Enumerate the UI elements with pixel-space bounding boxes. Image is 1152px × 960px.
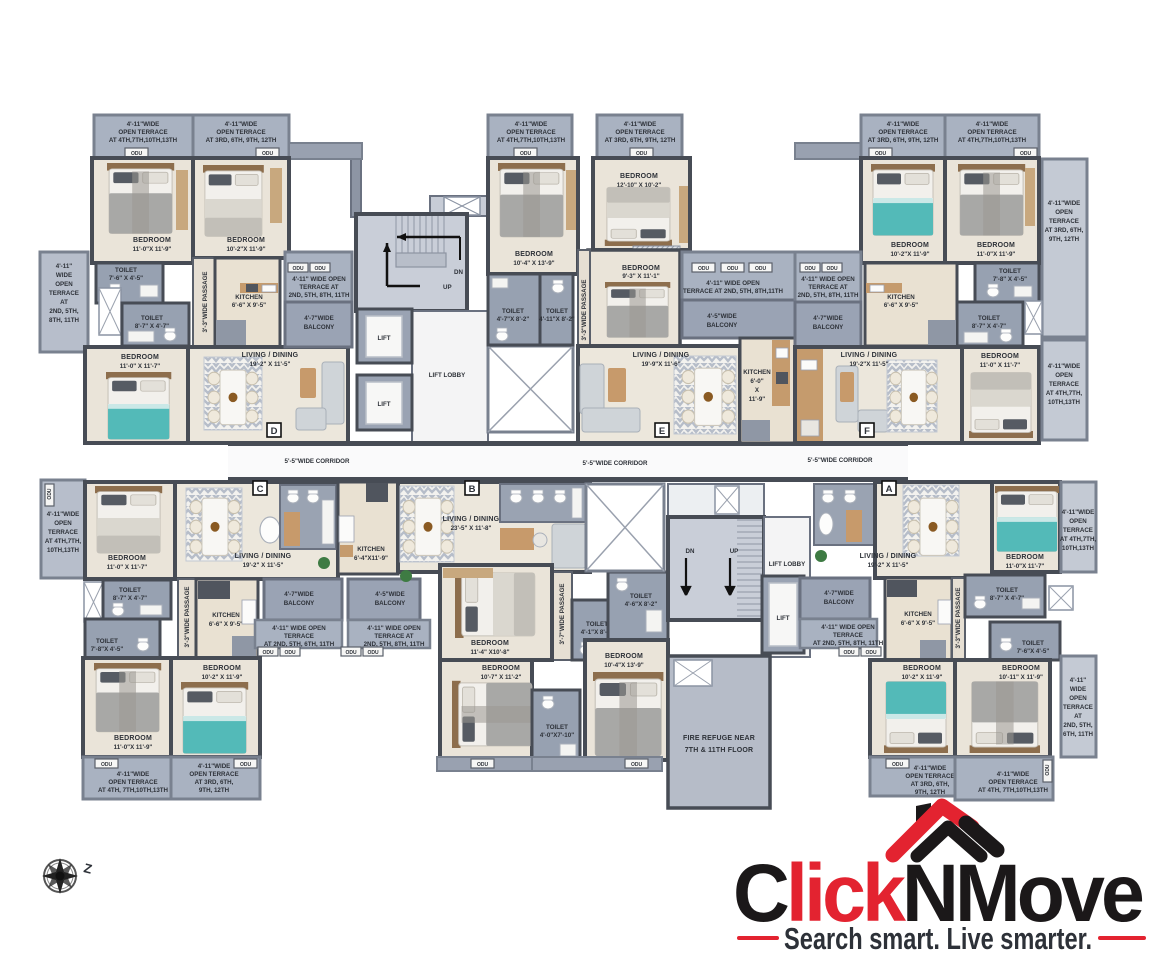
svg-text:5'-5"WIDE CORRIDOR: 5'-5"WIDE CORRIDOR [583,460,648,467]
svg-text:11'-0" X 11'-7": 11'-0" X 11'-7" [120,363,161,370]
svg-text:11'-0"X 11'-9": 11'-0"X 11'-9" [114,744,153,751]
svg-text:2ND, 5TH, 8TH, 11TH: 2ND, 5TH, 8TH, 11TH [798,292,859,299]
svg-text:6'-6" X 9'-5": 6'-6" X 9'-5" [232,302,266,309]
svg-text:6'-6" X 9'-5": 6'-6" X 9'-5" [884,302,918,309]
svg-text:DN: DN [686,548,695,555]
svg-text:19'-2" X 11'-5": 19'-2" X 11'-5" [250,361,291,368]
svg-text:FIRE REFUGE NEAR: FIRE REFUGE NEAR [683,735,755,742]
svg-text:OPEN TERRACE: OPEN TERRACE [905,773,954,780]
svg-text:AT 4TH,7TH,: AT 4TH,7TH, [1046,390,1083,397]
svg-text:LIVING / DINING: LIVING / DINING [841,352,898,359]
svg-text:AT 4TH,7TH,10TH,13TH: AT 4TH,7TH,10TH,13TH [109,137,178,144]
svg-text:10'-2"X 11'-9": 10'-2"X 11'-9" [890,251,929,258]
svg-text:2ND, 5TH,: 2ND, 5TH, [49,308,79,315]
svg-text:2ND, 5TH,: 2ND, 5TH, [1063,722,1093,729]
svg-text:TOILET: TOILET [1022,640,1044,647]
svg-text:4'-11"WIDE: 4'-11"WIDE [1048,363,1081,370]
svg-text:A: A [886,484,893,495]
svg-text:4'-11"WIDE: 4'-11"WIDE [914,765,947,772]
svg-text:AT 4TH, 7TH,10TH,13TH: AT 4TH, 7TH,10TH,13TH [978,787,1049,794]
svg-text:LIVING / DINING: LIVING / DINING [860,553,917,560]
svg-text:BEDROOM: BEDROOM [1006,554,1044,561]
svg-text:9'-3" X 11'-1": 9'-3" X 11'-1" [622,273,659,280]
svg-text:4'-11"WIDE: 4'-11"WIDE [47,511,80,518]
svg-text:4'-7"WIDE: 4'-7"WIDE [813,315,843,322]
svg-text:AT 3RD, 6TH, 9TH, 12TH: AT 3RD, 6TH, 9TH, 12TH [605,137,676,144]
svg-text:7TH & 11TH FLOOR: 7TH & 11TH FLOOR [685,747,754,754]
svg-text:KITCHEN: KITCHEN [887,294,915,301]
svg-text:AT 4TH, 7TH,10TH,13TH: AT 4TH, 7TH,10TH,13TH [98,787,169,794]
svg-text:ODU: ODU [727,266,739,272]
svg-text:BEDROOM: BEDROOM [891,242,929,249]
svg-text:OPEN: OPEN [1055,372,1073,379]
svg-text:BEDROOM: BEDROOM [482,665,520,672]
svg-text:11'-0" X 11'-7": 11'-0" X 11'-7" [980,362,1021,369]
svg-text:23'-5" X 11'-8": 23'-5" X 11'-8" [451,525,492,532]
svg-text:TOILET: TOILET [978,315,1000,322]
svg-text:11'-0"X 11'-9": 11'-0"X 11'-9" [133,246,172,253]
svg-text:BEDROOM: BEDROOM [1002,665,1040,672]
svg-text:OPEN TERRACE: OPEN TERRACE [967,129,1016,136]
svg-text:ODU: ODU [284,650,296,656]
svg-text:BALCONY: BALCONY [707,322,738,329]
svg-text:4'-11"WIDE: 4'-11"WIDE [624,121,657,128]
svg-text:BEDROOM: BEDROOM [108,555,146,562]
svg-text:TOILET: TOILET [546,308,568,315]
svg-text:BEDROOM: BEDROOM [203,665,241,672]
svg-text:BALCONY: BALCONY [824,599,855,606]
svg-text:11'-0"X 11'-7": 11'-0"X 11'-7" [1006,563,1045,570]
svg-text:LIFT: LIFT [377,401,390,408]
svg-text:KITCHEN: KITCHEN [212,612,240,619]
svg-text:4'-11" WIDE OPEN: 4'-11" WIDE OPEN [367,625,421,632]
svg-text:LIFT: LIFT [776,615,789,622]
svg-text:4'-11"WIDE: 4'-11"WIDE [976,121,1009,128]
svg-text:TOILET: TOILET [141,315,163,322]
svg-text:ODU: ODU [804,266,816,272]
svg-text:10TH,13TH: 10TH,13TH [1048,399,1081,406]
svg-text:6'-6" X 9'-5": 6'-6" X 9'-5" [901,620,935,627]
svg-text:TOILET: TOILET [996,587,1018,594]
svg-text:19'-2" X 11'-5": 19'-2" X 11'-5" [868,562,909,569]
svg-text:LIFT: LIFT [377,335,390,342]
svg-text:BEDROOM: BEDROOM [605,653,643,660]
svg-text:3'-3"WIDE PASSAGE: 3'-3"WIDE PASSAGE [202,271,209,332]
svg-text:TERRACE AT: TERRACE AT [808,284,847,291]
svg-text:ODU: ODU [47,488,53,500]
svg-text:ODU: ODU [292,266,304,272]
svg-text:DN: DN [454,269,463,276]
svg-text:4'-7"X 8'-2": 4'-7"X 8'-2" [497,316,530,323]
svg-text:OPEN TERRACE: OPEN TERRACE [988,779,1037,786]
svg-text:ODU: ODU [892,762,904,768]
svg-text:TOILET: TOILET [999,268,1021,275]
svg-text:10'-2" X 11'-9": 10'-2" X 11'-9" [902,674,943,681]
svg-text:6'-0": 6'-0" [750,378,763,385]
svg-text:E: E [659,426,665,437]
svg-text:ODU: ODU [262,650,274,656]
svg-text:ODU: ODU [314,266,326,272]
svg-text:4'-11" WIDE OPEN: 4'-11" WIDE OPEN [821,624,875,631]
svg-text:BEDROOM: BEDROOM [622,265,660,272]
svg-text:4'-11" WIDE OPEN: 4'-11" WIDE OPEN [801,276,855,283]
svg-text:ODU: ODU [240,762,252,768]
svg-text:OPEN TERRACE: OPEN TERRACE [189,771,238,778]
svg-text:8'-7" X 4'-7": 8'-7" X 4'-7" [113,595,147,602]
svg-text:4'-11"WIDE: 4'-11"WIDE [515,121,548,128]
svg-text:3'-7"WIDE PASSAGE: 3'-7"WIDE PASSAGE [559,583,566,644]
svg-text:3'-3"WIDE PASSAGE: 3'-3"WIDE PASSAGE [955,587,962,648]
svg-text:7'-8" X 4'-5": 7'-8" X 4'-5" [993,276,1027,283]
svg-text:4'-6"X 8'-2": 4'-6"X 8'-2" [625,601,658,608]
svg-text:10'-4" X 13'-9": 10'-4" X 13'-9" [513,260,554,267]
svg-text:B: B [469,484,476,495]
svg-text:ODU: ODU [865,650,877,656]
svg-text:4'-11" WIDE OPEN: 4'-11" WIDE OPEN [272,625,326,632]
svg-text:4'-11"WIDE: 4'-11"WIDE [198,763,231,770]
svg-text:7'-6"X 4'-5": 7'-6"X 4'-5" [1017,648,1050,655]
svg-text:TOILET: TOILET [119,587,141,594]
svg-text:TERRACE: TERRACE [48,529,78,536]
svg-text:BEDROOM: BEDROOM [977,242,1015,249]
svg-text:TERRACE AT 2ND, 5TH, 8TH,11TH: TERRACE AT 2ND, 5TH, 8TH,11TH [683,288,784,295]
svg-text:LIVING / DINING: LIVING / DINING [443,516,500,523]
svg-text:ODU: ODU [843,650,855,656]
svg-text:TERRACE: TERRACE [284,633,314,640]
svg-text:19'-2"X 11'-5": 19'-2"X 11'-5" [849,361,888,368]
svg-text:10'-2"X 11'-9": 10'-2"X 11'-9" [226,246,265,253]
svg-text:AT 4TH,7TH,: AT 4TH,7TH, [1060,536,1097,543]
svg-text:BEDROOM: BEDROOM [981,353,1019,360]
svg-text:OPEN TERRACE: OPEN TERRACE [216,129,265,136]
svg-text:AT: AT [60,299,68,306]
svg-text:9TH, 12TH: 9TH, 12TH [199,787,230,794]
svg-text:LIFT LOBBY: LIFT LOBBY [769,561,806,568]
svg-text:TERRACE: TERRACE [1063,527,1093,534]
svg-text:ODU: ODU [755,266,767,272]
svg-text:4'-11"WIDE: 4'-11"WIDE [117,771,150,778]
svg-text:5'-5"WIDE CORRIDOR: 5'-5"WIDE CORRIDOR [285,458,350,465]
svg-text:LIVING / DINING: LIVING / DINING [235,553,292,560]
svg-text:AT 4TH,7TH,10TH,13TH: AT 4TH,7TH,10TH,13TH [958,137,1027,144]
svg-text:C: C [257,484,264,495]
svg-text:OPEN: OPEN [55,281,73,288]
svg-text:3'-3"WIDE PASSAGE: 3'-3"WIDE PASSAGE [581,279,588,340]
svg-text:ODU: ODU [1045,764,1051,776]
svg-text:8TH, 11TH: 8TH, 11TH [49,317,79,324]
svg-text:BEDROOM: BEDROOM [620,173,658,180]
svg-text:TOILET: TOILET [502,308,524,315]
svg-text:4'-11"WIDE: 4'-11"WIDE [225,121,258,128]
svg-text:11'-0" X 11'-7": 11'-0" X 11'-7" [107,564,148,571]
svg-text:4'-7"WIDE: 4'-7"WIDE [824,590,854,597]
svg-text:LIVING / DINING: LIVING / DINING [242,352,299,359]
svg-text:10TH,13TH: 10TH,13TH [47,547,80,554]
svg-text:19'-2" X 11'-5": 19'-2" X 11'-5" [243,562,284,569]
svg-text:4'-11"WIDE: 4'-11"WIDE [997,771,1030,778]
svg-text:KITCHEN: KITCHEN [357,546,385,553]
svg-text:BALCONY: BALCONY [375,600,406,607]
svg-text:AT 3RD, 6TH,: AT 3RD, 6TH, [911,781,950,788]
svg-text:TOILET: TOILET [586,621,608,628]
svg-text:AT 4TH,7TH,10TH,13TH: AT 4TH,7TH,10TH,13TH [497,137,566,144]
svg-text:BEDROOM: BEDROOM [133,237,171,244]
svg-text:2ND, 5TH, 8TH, 11TH: 2ND, 5TH, 8TH, 11TH [289,292,350,299]
svg-text:AT 3RD, 6TH, 9TH, 12TH: AT 3RD, 6TH, 9TH, 12TH [206,137,277,144]
svg-text:KITCHEN: KITCHEN [235,294,263,301]
svg-text:Search smart. Live smarter.: Search smart. Live smarter. [784,921,1092,956]
svg-text:4'-11"WIDE: 4'-11"WIDE [127,121,160,128]
svg-text:UP: UP [443,284,452,291]
svg-text:TOILET: TOILET [630,593,652,600]
svg-text:4'-11"WIDE: 4'-11"WIDE [1062,509,1095,516]
svg-text:ODU: ODU [826,266,838,272]
svg-text:WIDE: WIDE [1070,686,1086,693]
svg-text:BEDROOM: BEDROOM [114,735,152,742]
svg-text:BALCONY: BALCONY [813,324,844,331]
svg-text:6'-6" X 9'-5": 6'-6" X 9'-5" [209,621,243,628]
svg-text:TOILET: TOILET [115,267,137,274]
svg-text:8'-7" X 4'-7": 8'-7" X 4'-7" [990,595,1024,602]
svg-text:ODU: ODU [631,762,643,768]
svg-text:BEDROOM: BEDROOM [471,640,509,647]
svg-text:4'-11"WIDE: 4'-11"WIDE [1048,200,1081,207]
svg-text:10'-4"X 13'-9": 10'-4"X 13'-9" [604,662,643,669]
svg-text:AT 3RD, 6TH,: AT 3RD, 6TH, [1045,227,1084,234]
svg-text:TERRACE AT: TERRACE AT [299,284,338,291]
svg-text:ODU: ODU [101,762,113,768]
svg-text:TOILET: TOILET [96,638,118,645]
svg-text:4'-11" WIDE OPEN: 4'-11" WIDE OPEN [292,276,346,283]
svg-text:OPEN TERRACE: OPEN TERRACE [878,129,927,136]
svg-text:OPEN: OPEN [1055,209,1073,216]
svg-text:ODU: ODU [477,762,489,768]
svg-text:4'-11": 4'-11" [56,263,73,270]
svg-text:11'-4" X10'-8": 11'-4" X10'-8" [470,649,509,656]
svg-text:4'-7"WIDE: 4'-7"WIDE [304,315,334,322]
svg-text:OPEN: OPEN [1069,695,1087,702]
svg-text:11'-0"X 11'-9": 11'-0"X 11'-9" [977,251,1016,258]
svg-text:TERRACE: TERRACE [49,290,79,297]
svg-text:WIDE: WIDE [56,272,72,279]
svg-text:7'-8"X 4'-5": 7'-8"X 4'-5" [91,646,124,653]
svg-text:4'-5"WIDE: 4'-5"WIDE [707,313,737,320]
svg-text:19'-9"X 11'-6": 19'-9"X 11'-6" [641,361,680,368]
svg-text:LIFT LOBBY: LIFT LOBBY [429,372,466,379]
svg-text:7'-6" X 4'-5": 7'-6" X 4'-5" [109,275,143,282]
svg-text:ODU: ODU [345,650,357,656]
svg-text:10TH,13TH: 10TH,13TH [1062,545,1095,552]
svg-text:KITCHEN: KITCHEN [904,611,932,618]
svg-text:4'-11"WIDE: 4'-11"WIDE [887,121,920,128]
svg-text:BEDROOM: BEDROOM [515,251,553,258]
svg-text:AT: AT [1074,713,1082,720]
svg-text:OPEN TERRACE: OPEN TERRACE [118,129,167,136]
svg-text:AT 4TH,7TH,: AT 4TH,7TH, [45,538,82,545]
svg-text:TOILET: TOILET [546,724,568,731]
svg-text:TERRACE AT: TERRACE AT [374,633,413,640]
svg-text:OPEN TERRACE: OPEN TERRACE [506,129,555,136]
svg-text:4'-11" WIDE OPEN: 4'-11" WIDE OPEN [706,280,760,287]
svg-text:AT 2ND, 5TH, 8TH, 11TH: AT 2ND, 5TH, 8TH, 11TH [813,640,884,647]
svg-text:OPEN: OPEN [54,520,72,527]
svg-text:UP: UP [730,548,739,555]
svg-text:LIVING / DINING: LIVING / DINING [633,352,690,359]
svg-text:4'-5"WIDE: 4'-5"WIDE [375,591,405,598]
svg-text:6'-4"X11'-9": 6'-4"X11'-9" [354,555,388,562]
svg-text:OPEN TERRACE: OPEN TERRACE [108,779,157,786]
svg-text:TERRACE: TERRACE [833,632,863,639]
svg-text:TERRACE: TERRACE [1049,381,1079,388]
svg-text:ODU: ODU [698,266,710,272]
svg-text:5'-5"WIDE CORRIDOR: 5'-5"WIDE CORRIDOR [808,457,873,464]
svg-text:ODU: ODU [367,650,379,656]
svg-text:OPEN TERRACE: OPEN TERRACE [615,129,664,136]
svg-text:11'-9": 11'-9" [749,396,766,403]
svg-text:BEDROOM: BEDROOM [227,237,265,244]
svg-text:TERRACE: TERRACE [1049,218,1079,225]
svg-text:4'-7"WIDE: 4'-7"WIDE [284,591,314,598]
svg-text:3'-3"WIDE PASSAGE: 3'-3"WIDE PASSAGE [184,586,191,647]
svg-text:10'-11" X 11'-9": 10'-11" X 11'-9" [999,674,1043,681]
svg-text:4'-0"X7'-10": 4'-0"X7'-10" [540,732,574,739]
svg-text:KITCHEN: KITCHEN [743,369,771,376]
svg-text:BEDROOM: BEDROOM [903,665,941,672]
svg-text:AT 3RD, 6TH, 9TH, 12TH: AT 3RD, 6TH, 9TH, 12TH [868,137,939,144]
svg-text:8'-7" X 4'-7": 8'-7" X 4'-7" [135,323,169,330]
svg-text:9TH, 12TH: 9TH, 12TH [915,789,946,796]
svg-text:TERRACE: TERRACE [1063,704,1093,711]
svg-text:F: F [864,426,870,437]
svg-text:BALCONY: BALCONY [304,324,335,331]
svg-text:4'-11": 4'-11" [1070,677,1087,684]
svg-text:AT 3RD, 6TH,: AT 3RD, 6TH, [195,779,234,786]
svg-text:6TH, 11TH: 6TH, 11TH [1063,731,1093,738]
svg-text:10'-2" X 11'-9": 10'-2" X 11'-9" [202,674,243,681]
svg-text:D: D [271,426,278,437]
svg-text:4'-11"X 8'-2": 4'-11"X 8'-2" [539,316,575,323]
svg-text:OPEN: OPEN [1069,518,1087,525]
svg-text:10'-7" X 11'-2": 10'-7" X 11'-2" [481,674,522,681]
svg-text:BEDROOM: BEDROOM [121,354,159,361]
svg-text:9TH, 12TH: 9TH, 12TH [1049,236,1080,243]
svg-text:BALCONY: BALCONY [284,600,315,607]
